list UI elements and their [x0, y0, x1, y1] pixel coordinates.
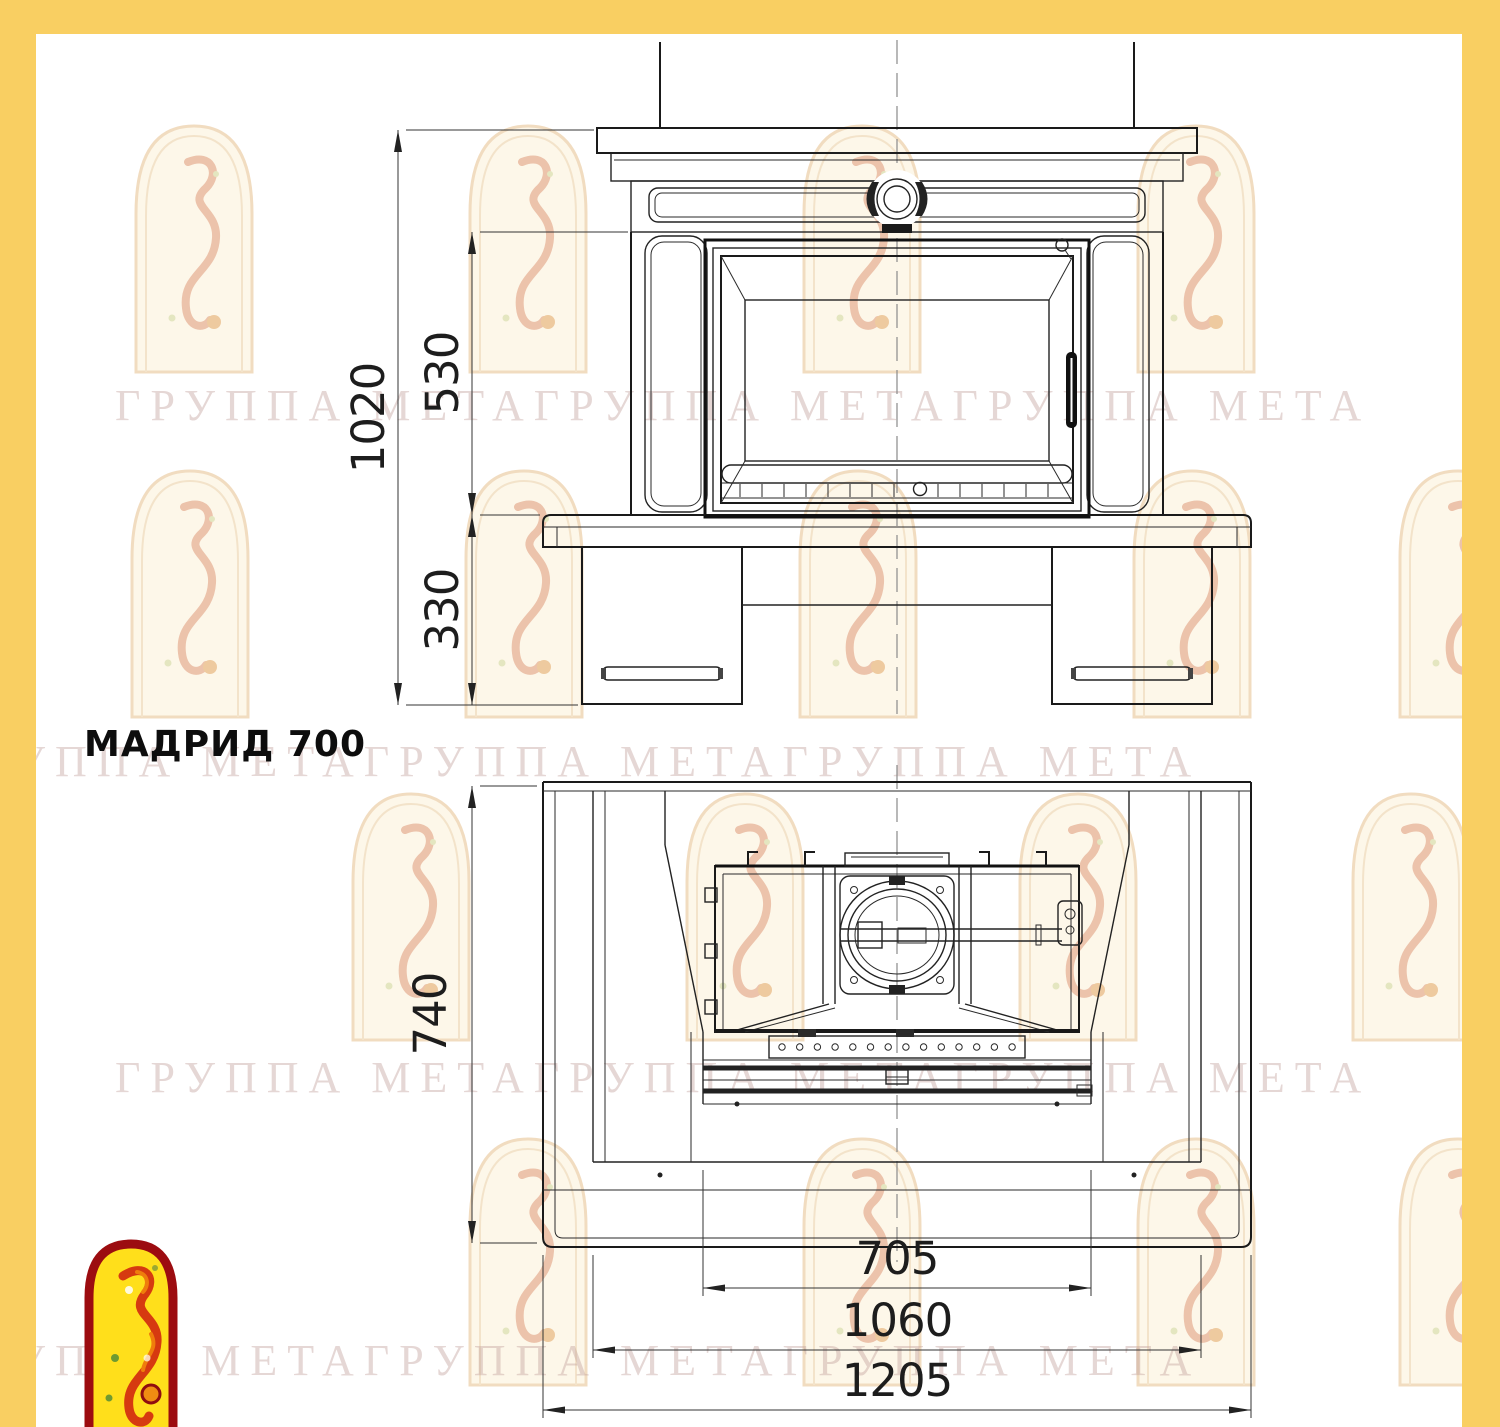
technical-drawing: ГРУППА МЕТАГРУППА МЕТАГРУППА МЕТА ГРУППА…: [0, 0, 1500, 1427]
dim-overall-height: 1020: [342, 363, 395, 474]
dim-depth: 740: [404, 973, 457, 1056]
dim-base-height: 330: [416, 569, 469, 652]
dim-body-width: 1060: [842, 1294, 953, 1347]
drawing-sheet: ГРУППА МЕТАГРУППА МЕТАГРУППА МЕТА ГРУППА…: [0, 0, 1500, 1427]
dim-opening-height: 530: [416, 332, 469, 415]
door-latch: [882, 224, 912, 233]
dim-opening-width: 705: [856, 1232, 939, 1285]
meta-arch-firebird-logo: [89, 1244, 173, 1427]
watermark-text-row: ГРУППА МЕТАГРУППА МЕТАГРУППА МЕТА: [0, 1336, 1201, 1385]
watermark-text-row: ГРУППА МЕТАГРУППА МЕТАГРУППА МЕТА: [115, 381, 1371, 430]
page-title: МАДРИД 700: [84, 724, 366, 765]
dim-overall-width: 1205: [842, 1354, 953, 1407]
